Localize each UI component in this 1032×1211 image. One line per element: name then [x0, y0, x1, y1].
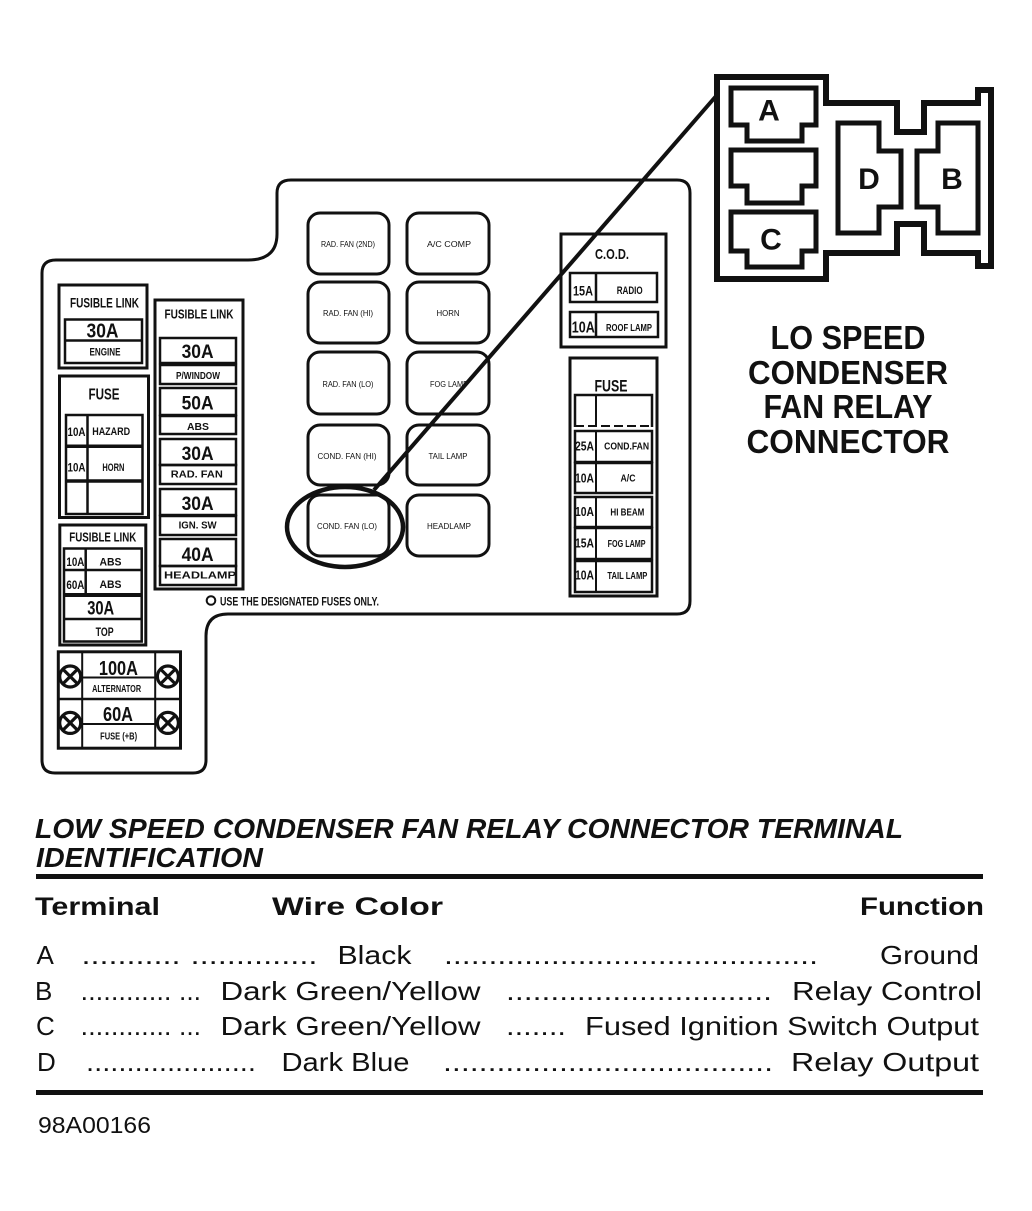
- svg-text:Fused Ignition Switch Output: Fused Ignition Switch Output: [585, 1011, 980, 1041]
- svg-text:C.O.D.: C.O.D.: [595, 246, 629, 263]
- svg-text:30A: 30A: [182, 494, 214, 515]
- svg-text:HI BEAM: HI BEAM: [610, 508, 644, 519]
- svg-text:FUSIBLE LINK: FUSIBLE LINK: [70, 295, 139, 311]
- svg-text:..............................: .....................................: [443, 1047, 773, 1077]
- svg-text:..............................: ..............................: [506, 976, 772, 1006]
- svg-text:ABS: ABS: [100, 579, 122, 591]
- svg-text:10A: 10A: [66, 555, 84, 569]
- svg-text:TAIL LAMP: TAIL LAMP: [429, 451, 468, 461]
- svg-text:10A: 10A: [575, 504, 594, 519]
- svg-text:D: D: [37, 1047, 56, 1077]
- svg-text:COND. FAN (LO): COND. FAN (LO): [317, 521, 377, 531]
- svg-text:IDENTIFICATION: IDENTIFICATION: [36, 842, 264, 873]
- svg-text:10A: 10A: [572, 320, 595, 337]
- svg-text:Ground: Ground: [880, 940, 979, 970]
- svg-text:TOP: TOP: [96, 625, 114, 639]
- svg-text:A/C COMP: A/C COMP: [427, 239, 471, 249]
- svg-text:RAD. FAN (LO): RAD. FAN (LO): [323, 379, 374, 389]
- svg-text:HEADLAMP: HEADLAMP: [427, 521, 471, 531]
- svg-text:C: C: [36, 1011, 55, 1041]
- svg-text:RAD. FAN (2ND): RAD. FAN (2ND): [321, 239, 375, 249]
- svg-text:30A: 30A: [87, 599, 114, 620]
- svg-text:30A: 30A: [87, 321, 119, 343]
- svg-text:HORN: HORN: [437, 308, 460, 318]
- svg-text:USE THE DESIGNATED FUSES ONLY.: USE THE DESIGNATED FUSES ONLY.: [220, 597, 379, 609]
- svg-text:HORN: HORN: [102, 462, 124, 474]
- svg-text:.....................: .....................: [86, 1047, 256, 1077]
- svg-text:Dark Green/Yellow: Dark Green/Yellow: [221, 1011, 481, 1041]
- svg-text:A/C: A/C: [621, 474, 636, 485]
- svg-text:Terminal: Terminal: [35, 893, 160, 921]
- svg-text:B: B: [35, 976, 52, 1006]
- svg-text:P/WINDOW: P/WINDOW: [176, 371, 220, 382]
- svg-text:...: ...: [179, 976, 201, 1006]
- svg-text:10A: 10A: [575, 568, 594, 583]
- svg-text:FAN RELAY: FAN RELAY: [764, 388, 933, 425]
- svg-text:RAD. FAN: RAD. FAN: [171, 470, 223, 481]
- svg-text:B: B: [941, 163, 963, 196]
- svg-text:HEADLAMP: HEADLAMP: [164, 571, 236, 582]
- svg-text:10A: 10A: [68, 461, 86, 475]
- svg-text:40A: 40A: [182, 545, 214, 566]
- svg-text:Relay Control: Relay Control: [792, 976, 982, 1006]
- svg-text:30A: 30A: [182, 444, 214, 465]
- svg-text:ROOF LAMP: ROOF LAMP: [606, 323, 652, 334]
- svg-text:FUSE: FUSE: [89, 387, 120, 404]
- svg-text:...: ...: [179, 1011, 201, 1041]
- svg-text:...........: ...........: [82, 940, 181, 970]
- svg-text:98A00166: 98A00166: [38, 1112, 151, 1138]
- svg-text:............: ............: [81, 1011, 172, 1041]
- svg-text:30A: 30A: [182, 342, 214, 363]
- svg-text:ABS: ABS: [100, 557, 122, 569]
- svg-text:HAZARD: HAZARD: [92, 426, 130, 438]
- svg-text:ABS: ABS: [187, 422, 209, 433]
- svg-text:RADIO: RADIO: [617, 285, 643, 297]
- svg-text:CONNECTOR: CONNECTOR: [747, 423, 950, 460]
- svg-text:............: ............: [81, 976, 172, 1006]
- svg-text:COND.FAN: COND.FAN: [604, 442, 649, 453]
- svg-text:A: A: [37, 940, 55, 970]
- svg-text:10A: 10A: [575, 471, 594, 486]
- svg-text:LO SPEED: LO SPEED: [771, 319, 926, 356]
- svg-text:Function: Function: [860, 893, 984, 921]
- svg-text:50A: 50A: [182, 394, 214, 415]
- svg-text:Dark Blue: Dark Blue: [282, 1047, 410, 1077]
- svg-text:ALTERNATOR: ALTERNATOR: [92, 684, 142, 695]
- svg-text:Relay Output: Relay Output: [791, 1047, 980, 1077]
- svg-text:LOW SPEED CONDENSER FAN RELAY: LOW SPEED CONDENSER FAN RELAY CONNECTOR …: [35, 813, 903, 844]
- svg-text:CONDENSER: CONDENSER: [748, 354, 948, 391]
- svg-text:COND. FAN (HI): COND. FAN (HI): [318, 451, 377, 461]
- svg-text:FUSE (+B): FUSE (+B): [100, 732, 137, 743]
- svg-text:FUSIBLE LINK: FUSIBLE LINK: [69, 530, 136, 545]
- svg-text:FOG LAMP: FOG LAMP: [608, 539, 646, 550]
- svg-text:IGN. SW: IGN. SW: [179, 521, 218, 532]
- svg-text:ENGINE: ENGINE: [90, 347, 121, 359]
- svg-text:15A: 15A: [573, 283, 593, 299]
- svg-text:60A: 60A: [66, 578, 84, 592]
- svg-text:25A: 25A: [575, 439, 594, 454]
- svg-text:Dark Green/Yellow: Dark Green/Yellow: [221, 976, 481, 1006]
- svg-text:TAIL LAMP: TAIL LAMP: [607, 571, 647, 582]
- svg-text:..............................: ........................................…: [444, 940, 818, 970]
- svg-text:Wire Color: Wire Color: [272, 893, 443, 921]
- svg-text:10A: 10A: [68, 425, 86, 439]
- svg-text:60A: 60A: [103, 704, 133, 726]
- svg-text:100A: 100A: [99, 658, 138, 680]
- svg-text:C: C: [760, 224, 782, 257]
- svg-text:..............: ..............: [191, 940, 318, 970]
- svg-text:FUSE: FUSE: [595, 377, 628, 396]
- svg-text:FUSIBLE LINK: FUSIBLE LINK: [165, 307, 234, 322]
- svg-text:15A: 15A: [575, 536, 594, 551]
- svg-text:A: A: [758, 95, 780, 128]
- svg-text:D: D: [858, 163, 880, 196]
- svg-text:.......: .......: [506, 1011, 566, 1041]
- svg-text:RAD. FAN (HI): RAD. FAN (HI): [323, 308, 373, 318]
- svg-text:Black: Black: [338, 940, 413, 970]
